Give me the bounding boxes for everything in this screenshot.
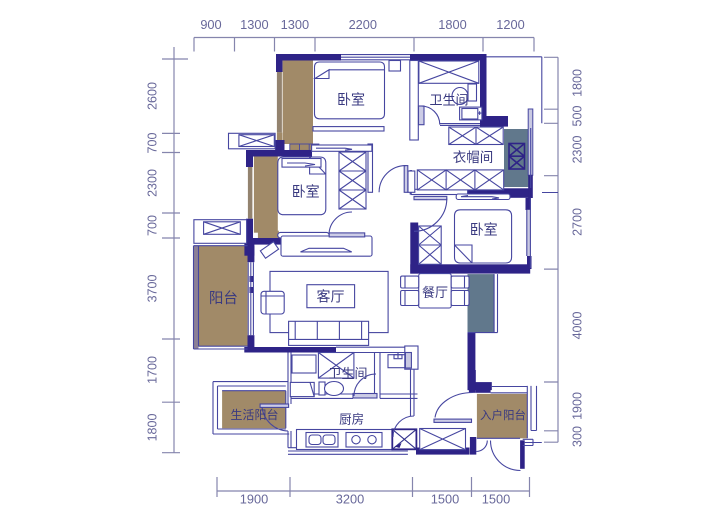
svg-text:2600: 2600 xyxy=(146,82,160,110)
svg-text:1700: 1700 xyxy=(146,356,160,384)
svg-text:卫生间: 卫生间 xyxy=(328,366,367,381)
svg-text:2700: 2700 xyxy=(571,208,585,236)
svg-text:1800: 1800 xyxy=(146,414,160,442)
svg-text:1800: 1800 xyxy=(571,69,585,97)
svg-text:2300: 2300 xyxy=(146,169,160,197)
svg-text:阳台: 阳台 xyxy=(209,290,238,307)
svg-text:餐厅: 餐厅 xyxy=(422,285,448,300)
svg-text:卫生间: 卫生间 xyxy=(429,93,468,108)
svg-text:1300: 1300 xyxy=(281,17,309,32)
svg-text:4000: 4000 xyxy=(571,312,585,340)
svg-text:卧室: 卧室 xyxy=(470,222,498,238)
svg-text:300: 300 xyxy=(571,426,585,447)
svg-text:900: 900 xyxy=(200,17,221,32)
svg-text:1500: 1500 xyxy=(482,492,510,507)
svg-text:1500: 1500 xyxy=(431,492,459,507)
svg-text:1900: 1900 xyxy=(240,492,268,507)
svg-text:卧室: 卧室 xyxy=(337,92,365,108)
svg-text:1300: 1300 xyxy=(240,17,268,32)
svg-text:衣帽间: 衣帽间 xyxy=(453,150,494,165)
svg-text:700: 700 xyxy=(146,133,160,154)
svg-text:1200: 1200 xyxy=(496,17,524,32)
svg-text:1900: 1900 xyxy=(571,392,585,420)
svg-text:卧室: 卧室 xyxy=(292,183,320,199)
svg-text:生活阳台: 生活阳台 xyxy=(230,407,278,422)
svg-text:2200: 2200 xyxy=(349,17,377,32)
svg-text:2300: 2300 xyxy=(571,136,585,164)
svg-text:客厅: 客厅 xyxy=(317,289,345,305)
svg-text:700: 700 xyxy=(146,215,160,236)
svg-text:3200: 3200 xyxy=(336,492,364,507)
svg-text:厨房: 厨房 xyxy=(339,412,364,427)
svg-text:3700: 3700 xyxy=(146,275,160,303)
svg-text:500: 500 xyxy=(571,106,585,127)
svg-text:入户阳台: 入户阳台 xyxy=(480,408,526,422)
svg-text:1800: 1800 xyxy=(438,17,466,32)
